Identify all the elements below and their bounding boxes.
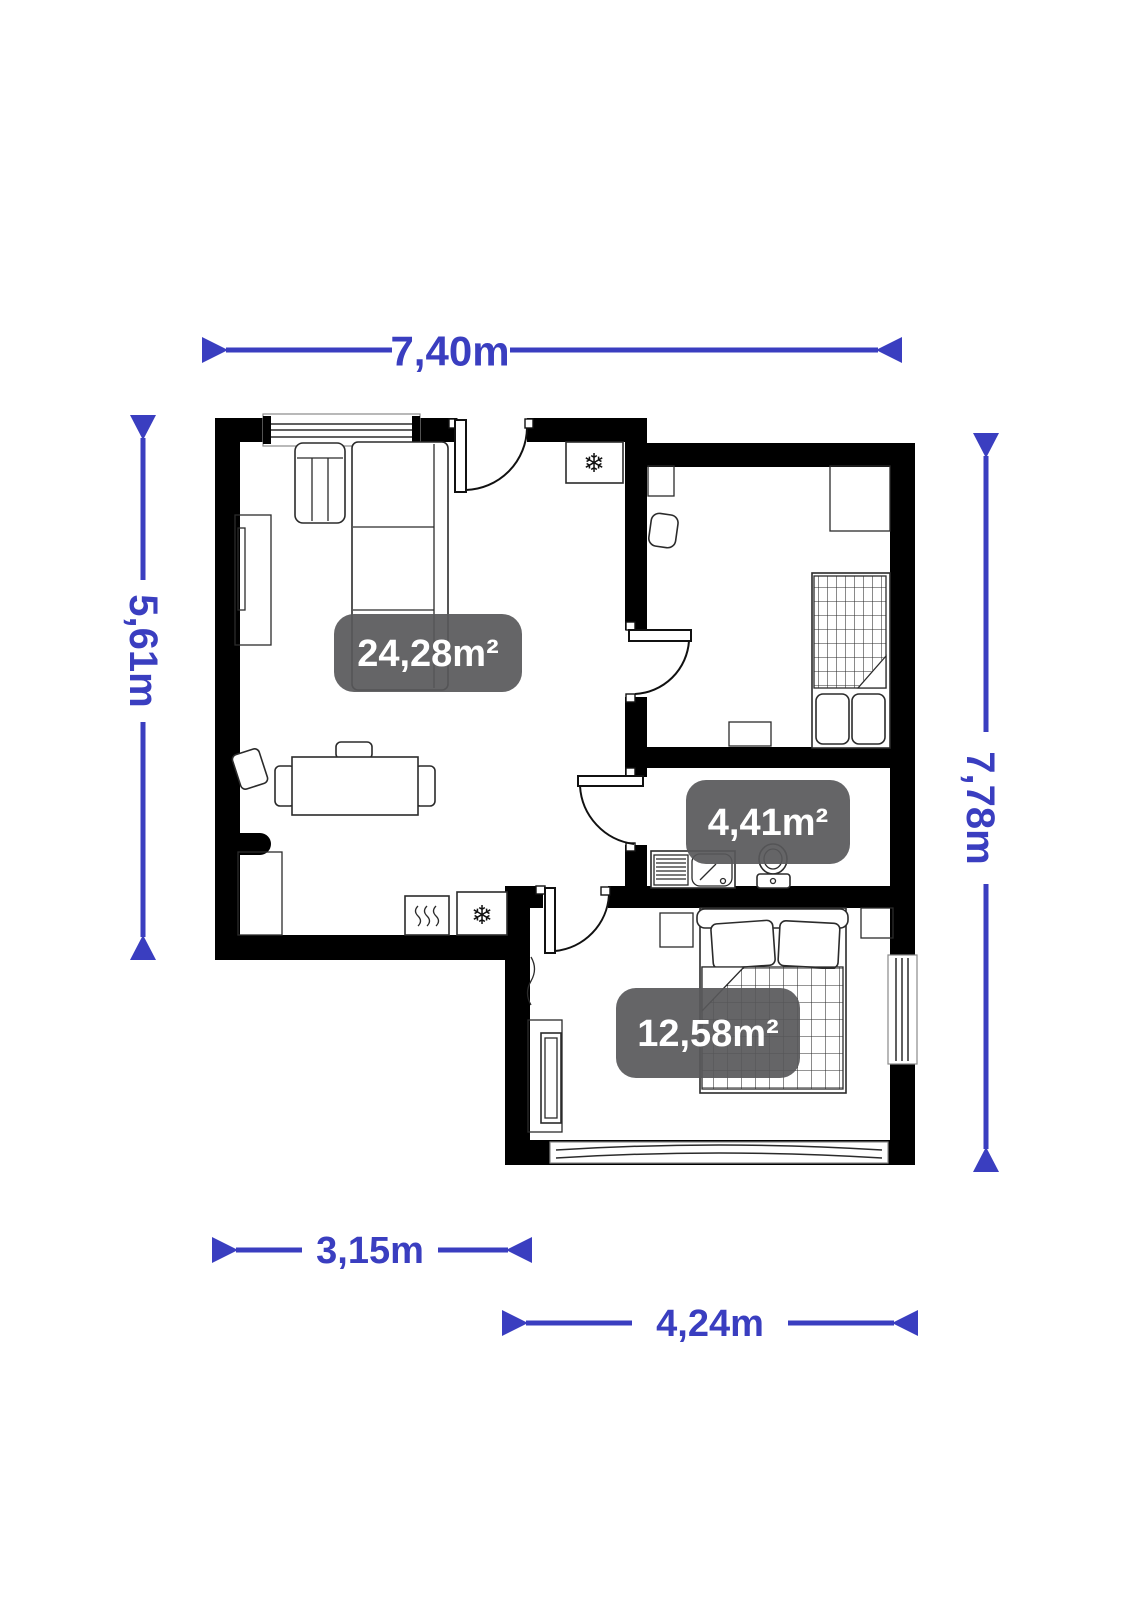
dim-arrow-down-icon (973, 1147, 999, 1172)
dimension-bottom-inner: 3,15m (212, 1230, 532, 1272)
area-badge-bathroom: 4,41m² (686, 780, 850, 864)
wall-bedroom2-top (640, 443, 912, 467)
snowflake-icon: ❄ (471, 900, 493, 930)
area-label-bedroom: 12,58m² (637, 1013, 779, 1055)
area-badge-living: 24,28m² (334, 614, 522, 692)
radiator (528, 1020, 562, 1132)
area-label-living: 24,28m² (357, 633, 499, 675)
wall-right-upper (890, 443, 915, 957)
dim-label-bottom-outer: 4,24m (656, 1303, 764, 1345)
floor-plan-canvas: 7,40m 5,61m 7,78m 3,15m 4,24m (0, 0, 1131, 1600)
dimension-left: 5,61m (121, 415, 165, 960)
kitchen-counter (238, 852, 282, 935)
dim-arrow-left-icon (502, 1310, 528, 1336)
area-label-bathroom: 4,41m² (708, 802, 828, 844)
desk (648, 466, 674, 496)
dim-arrow-right-icon (506, 1237, 532, 1263)
armchair (295, 443, 345, 523)
dim-label-top: 7,40m (390, 328, 509, 375)
wall-right-lower (890, 1062, 915, 1146)
tv-cabinet (235, 515, 271, 645)
dim-arrow-right-icon (892, 1310, 918, 1336)
closet (830, 466, 890, 531)
wall-top-right (527, 418, 647, 442)
stove (405, 896, 449, 935)
dimension-bottom-outer: 4,24m (502, 1303, 918, 1345)
dimension-top: 7,40m (202, 328, 902, 375)
wall-bathroom-top (625, 747, 912, 768)
single-bed (812, 573, 890, 748)
dim-arrow-up-icon (973, 433, 999, 458)
freezer-kitchen: ❄ (457, 892, 507, 935)
dim-arrow-left-icon (212, 1237, 238, 1263)
area-badge-bedroom: 12,58m² (616, 988, 800, 1078)
dimension-right: 7,78m (958, 433, 1002, 1172)
chair (648, 512, 679, 548)
bedroom1-door (536, 886, 610, 953)
dim-label-left: 5,61m (121, 594, 165, 707)
bedroom2-door (626, 622, 691, 702)
bedroom-top-right (648, 466, 890, 748)
dim-arrow-down-icon (130, 935, 156, 960)
window-bedroom-bottom (550, 1142, 888, 1163)
dim-label-bottom-inner: 3,15m (316, 1230, 424, 1272)
snowflake-icon: ❄ (583, 448, 605, 478)
window-bedroom-right (888, 955, 917, 1064)
floor-plan-page: 7,40m 5,61m 7,78m 3,15m 4,24m (0, 0, 1131, 1600)
wall-bedroom1-left (505, 886, 530, 1165)
bathroom-door (578, 768, 643, 851)
nightstand (660, 913, 693, 947)
wall-left (215, 418, 240, 960)
entrance-door (449, 419, 533, 492)
dim-arrow-up-icon (130, 415, 156, 440)
dining-table (231, 742, 435, 815)
dim-arrow-left-icon (202, 337, 228, 363)
wall-center-upper (625, 442, 647, 630)
freezer-hall: ❄ (566, 442, 623, 483)
stool (729, 722, 771, 746)
wall-bathroom-bottom (608, 886, 915, 908)
dim-label-right: 7,78m (958, 751, 1002, 864)
dim-arrow-right-icon (876, 337, 902, 363)
wall-living-bottom (215, 935, 530, 960)
closet (861, 908, 893, 938)
